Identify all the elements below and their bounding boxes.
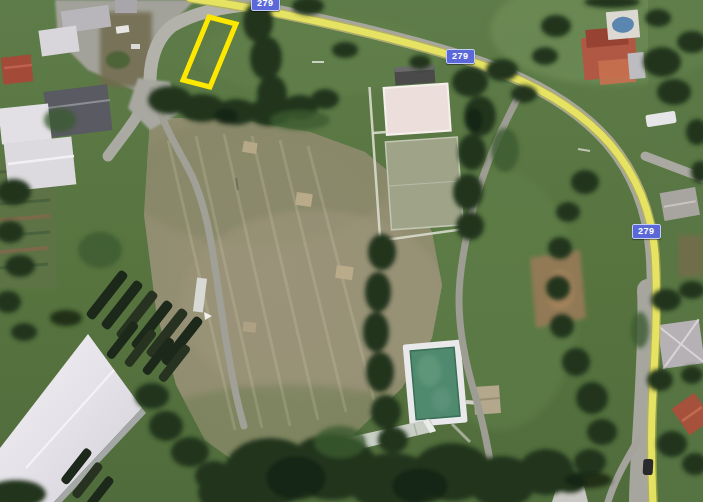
route-shield-279-right: 279: [632, 224, 661, 239]
satellite-imagery: [0, 0, 703, 502]
swimming-pool: [403, 340, 468, 428]
route-shield-279-middle: 279: [446, 49, 475, 64]
dark-car: [643, 459, 654, 476]
route-shield-279-top: 279: [251, 0, 280, 11]
map-viewport[interactable]: 279 279 279: [0, 0, 703, 502]
